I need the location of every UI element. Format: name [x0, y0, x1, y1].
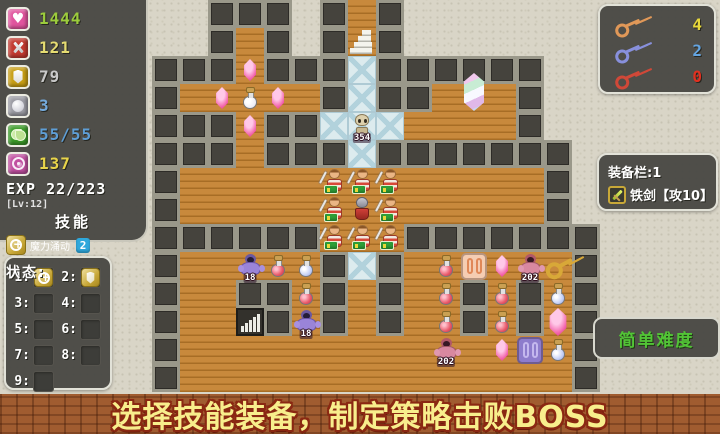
	[377, 225, 403, 251]
plus-circle-icon	[10, 239, 22, 251]
badge	[380, 185, 394, 194]
wall-tile	[292, 112, 320, 140]
difficulty-button[interactable]: 简单难度	[593, 317, 720, 359]
silver-value: 3	[39, 96, 50, 115]
badge	[352, 241, 366, 250]
floor-tile[interactable]	[236, 196, 264, 224]
gem-icon	[243, 115, 258, 137]
floor-tile[interactable]	[460, 196, 488, 224]
wall-tile	[572, 280, 600, 308]
floor-tile[interactable]	[208, 252, 236, 280]
wall-tile	[488, 140, 516, 168]
warrior-sprite[interactable]	[320, 224, 348, 252]
floor-tile[interactable]	[236, 364, 264, 392]
stairs-up-tile[interactable]	[348, 28, 376, 56]
wall-tile	[152, 252, 180, 280]
floor-tile[interactable]	[348, 364, 376, 392]
monster-hp-label: 202	[437, 357, 455, 367]
stats-panel: ♥144412179355/55137 EXP 22/223 [Lv:12] 技…	[0, 0, 148, 242]
big-gem-icon	[548, 308, 569, 336]
wall-tile	[320, 252, 348, 280]
floor-tile[interactable]	[236, 336, 264, 364]
skeleton-sprite[interactable]: 354	[348, 112, 376, 140]
wall-tile	[544, 168, 572, 196]
wall-tile	[264, 0, 292, 28]
floor-tile[interactable]	[292, 168, 320, 196]
potion-red-sprite[interactable]	[488, 280, 516, 308]
floor-tile[interactable]	[432, 364, 460, 392]
wall-tile	[180, 112, 208, 140]
hp-value: 1444	[39, 9, 82, 28]
floor-tile[interactable]	[460, 364, 488, 392]
sword	[347, 227, 355, 239]
	[321, 197, 347, 223]
wall-tile	[376, 0, 404, 28]
heart-icon: ♥	[6, 7, 30, 31]
floor-tile[interactable]	[180, 252, 208, 280]
floor-tile[interactable]	[180, 84, 208, 112]
wall-tile	[236, 0, 264, 28]
red-key-count: 0	[692, 67, 702, 86]
head	[329, 197, 340, 207]
slot-6-box[interactable]	[80, 319, 101, 340]
wall-tile	[264, 28, 292, 56]
floor-tile[interactable]	[432, 84, 460, 112]
money-icon-glyph	[11, 129, 26, 141]
gem-icon	[495, 339, 510, 361]
potion-white-sprite[interactable]	[236, 84, 264, 112]
head	[385, 197, 396, 207]
slot-9-label: 9:	[14, 374, 30, 389]
spiral-icon-glyph	[12, 157, 25, 170]
floor-tile[interactable]	[208, 168, 236, 196]
mage-hp-label: 18	[244, 273, 257, 283]
ice-floor-tile[interactable]	[348, 252, 376, 280]
money-icon	[6, 123, 30, 147]
defense-value: 79	[39, 67, 60, 86]
floor-tile[interactable]	[208, 280, 236, 308]
floor-tile[interactable]	[180, 168, 208, 196]
wall-tile	[516, 308, 544, 336]
wall-tile	[152, 196, 180, 224]
head	[357, 225, 368, 235]
keys-panel: 420	[598, 4, 716, 94]
ice-floor-tile[interactable]	[376, 112, 404, 140]
floor-tile[interactable]	[208, 336, 236, 364]
floor-tile[interactable]	[208, 364, 236, 392]
wall-tile	[152, 280, 180, 308]
sword	[319, 227, 327, 239]
gem-sprite[interactable]	[488, 252, 516, 280]
wall-tile	[208, 56, 236, 84]
sword	[319, 199, 327, 211]
sword	[375, 199, 383, 211]
wall-tile	[264, 224, 292, 252]
wall-tile	[516, 112, 544, 140]
floor-tile[interactable]	[516, 168, 544, 196]
yellow-key-icon	[610, 10, 645, 39]
wall-tile	[376, 56, 404, 84]
head	[356, 197, 368, 208]
slot-9-box[interactable]	[33, 371, 54, 392]
wall-tile	[460, 280, 488, 308]
floor-tile[interactable]	[264, 364, 292, 392]
red-potion-icon	[495, 292, 509, 305]
wall-tile	[544, 140, 572, 168]
floor-tile[interactable]	[180, 336, 208, 364]
floor-tile[interactable]	[404, 364, 432, 392]
floor-tile[interactable]	[432, 168, 460, 196]
mage-hp-label: 18	[300, 329, 313, 339]
badge	[380, 213, 394, 222]
floor-tile[interactable]	[544, 364, 572, 392]
potion-blue-sprite[interactable]	[544, 280, 572, 308]
ice-floor-tile[interactable]	[320, 112, 348, 140]
gem-sprite[interactable]	[264, 84, 292, 112]
potion-red-sprite[interactable]	[432, 280, 460, 308]
wall-tile	[264, 112, 292, 140]
wall-tile	[152, 112, 180, 140]
floor-tile[interactable]	[292, 196, 320, 224]
floor-tile[interactable]	[348, 280, 376, 308]
exp-value: 22/223	[46, 180, 106, 198]
door-purple-sprite[interactable]	[516, 336, 544, 364]
floor-tile[interactable]	[376, 336, 404, 364]
floor-tile[interactable]	[348, 0, 376, 28]
gem-sprite[interactable]	[488, 336, 516, 364]
: 202	[433, 337, 459, 363]
skill-plus-icon[interactable]	[6, 235, 26, 255]
slot-4-label: 4:	[61, 296, 77, 311]
wall-tile	[376, 28, 404, 56]
sword-icon-glyph	[10, 40, 26, 56]
equipment-title: 装备栏:1	[608, 162, 707, 181]
gem-sprite[interactable]	[236, 112, 264, 140]
slot-6-label: 6:	[61, 322, 77, 337]
badge	[352, 185, 366, 194]
floor-tile[interactable]	[180, 308, 208, 336]
floor-tile[interactable]	[236, 28, 264, 56]
wall-tile	[376, 140, 404, 168]
: 202	[517, 253, 543, 279]
sword-icon	[6, 36, 30, 60]
floor-tile[interactable]	[432, 112, 460, 140]
floor-tile[interactable]	[292, 84, 320, 112]
key-item-sprite[interactable]	[544, 252, 572, 280]
blue-potion-icon	[551, 292, 565, 305]
	[349, 225, 375, 251]
game-screen: 3541818202202 ♥144412179355/55137 EXP 22…	[0, 0, 720, 434]
	[321, 225, 347, 251]
floor-tile[interactable]	[264, 336, 292, 364]
skill-name: 魔力涌动	[30, 238, 70, 253]
floor-tile[interactable]	[460, 336, 488, 364]
wall-tile	[572, 364, 600, 392]
floor-tile[interactable]	[180, 196, 208, 224]
wall-tile	[208, 224, 236, 252]
floor-tile[interactable]	[404, 280, 432, 308]
yellow-key-row: 4	[612, 11, 702, 37]
crystal-sprite[interactable]	[460, 84, 488, 112]
floor-tile[interactable]	[348, 308, 376, 336]
slot-5[interactable]: 5:	[14, 317, 55, 342]
	[377, 169, 403, 195]
floor-tile[interactable]	[488, 196, 516, 224]
wall-tile	[264, 308, 292, 336]
wall-tile	[488, 56, 516, 84]
big-gem-sprite[interactable]	[544, 308, 572, 336]
red-potion-icon	[439, 320, 453, 333]
wall-tile	[152, 336, 180, 364]
badge	[324, 185, 338, 194]
potion-blue-sprite[interactable]	[292, 252, 320, 280]
red-key-row: 0	[612, 63, 702, 89]
skill-count-badge: 2	[76, 238, 90, 253]
slot-3-box[interactable]	[33, 293, 54, 314]
wall-tile	[180, 140, 208, 168]
wall-tile	[236, 224, 264, 252]
banner-text: 选择技能装备，制定策略击败BOSS	[111, 394, 608, 434]
floor-tile[interactable]	[516, 364, 544, 392]
wall-tile	[208, 0, 236, 28]
equipment-item-name: 铁剑【攻10】	[630, 185, 713, 204]
purple-door	[517, 337, 543, 364]
exp-label: EXP	[6, 180, 36, 198]
wall-tile	[516, 140, 544, 168]
gold-key-icon	[542, 252, 574, 279]
: 18	[293, 309, 319, 335]
ice-floor-tile[interactable]	[348, 84, 376, 112]
warrior-sprite[interactable]	[320, 168, 348, 196]
door-orange-sprite[interactable]	[460, 252, 488, 280]
floor-tile[interactable]	[404, 112, 432, 140]
floor-tile[interactable]	[292, 364, 320, 392]
heart-icon-glyph: ♥	[12, 12, 25, 26]
floor-tile[interactable]	[488, 84, 516, 112]
wall-tile	[292, 224, 320, 252]
skill-mana-surge[interactable]: 魔力涌动 2	[6, 235, 140, 255]
floor-tile[interactable]	[180, 280, 208, 308]
wall-tile	[404, 140, 432, 168]
wall-tile	[376, 280, 404, 308]
red-potion-icon	[299, 292, 313, 305]
floor-tile[interactable]	[320, 336, 348, 364]
potion-red-sprite[interactable]	[432, 308, 460, 336]
status-label: 状态:	[6, 262, 140, 282]
gem-icon	[495, 255, 510, 277]
shield-icon	[6, 65, 30, 89]
wall-tile	[264, 56, 292, 84]
sword	[375, 227, 383, 239]
warrior-sprite[interactable]	[348, 168, 376, 196]
red-key-icon	[610, 62, 645, 91]
slot-8[interactable]: 8:	[61, 343, 102, 368]
floor-tile[interactable]	[236, 140, 264, 168]
warrior-sprite[interactable]	[376, 168, 404, 196]
hero-sprite	[348, 196, 376, 224]
coin-icon-glyph	[12, 100, 24, 112]
wall-tile	[572, 224, 600, 252]
sword	[347, 171, 355, 183]
wall-tile	[320, 28, 348, 56]
slot-9[interactable]: 9:	[14, 369, 55, 394]
slot-8-label: 8:	[61, 348, 77, 363]
wall-tile	[320, 140, 348, 168]
head	[385, 225, 396, 235]
gem-icon	[271, 87, 286, 109]
floor-tile[interactable]	[460, 112, 488, 140]
slot-6[interactable]: 6:	[61, 317, 102, 342]
monster-hp-label: 202	[521, 273, 539, 283]
defense-row: 79	[6, 62, 140, 91]
wall-tile	[432, 56, 460, 84]
iron-sword-icon	[608, 186, 626, 204]
badge	[324, 213, 338, 222]
wall-tile	[292, 140, 320, 168]
wall-tile	[236, 280, 264, 308]
	[349, 169, 375, 195]
stairs-down-tile[interactable]	[236, 308, 264, 336]
red-potion-icon	[439, 292, 453, 305]
yellow-key-count: 4	[692, 15, 702, 34]
wall-tile	[292, 56, 320, 84]
wall-tile	[152, 224, 180, 252]
wall-tile	[432, 224, 460, 252]
potion-red-sprite[interactable]	[264, 252, 292, 280]
wall-tile	[516, 224, 544, 252]
wall-tile	[516, 56, 544, 84]
wall-tile	[460, 308, 488, 336]
wall-tile	[180, 224, 208, 252]
floor-tile[interactable]	[516, 196, 544, 224]
wall-tile	[376, 84, 404, 112]
mage-sprite[interactable]: 18	[236, 252, 264, 280]
head	[355, 114, 369, 126]
warrior-sprite[interactable]	[376, 196, 404, 224]
head	[357, 169, 368, 179]
potion-red-sprite[interactable]	[488, 308, 516, 336]
slot-4[interactable]: 4:	[61, 291, 102, 316]
potion-blue-sprite[interactable]	[544, 336, 572, 364]
skills-title: 技能	[6, 211, 140, 232]
warrior-sprite[interactable]	[348, 224, 376, 252]
shield-icon-glyph	[12, 70, 24, 84]
wall-tile	[544, 224, 572, 252]
floor-tile[interactable]	[292, 336, 320, 364]
slot-5-box[interactable]	[33, 319, 54, 340]
wall-tile	[320, 56, 348, 84]
wall-tile	[404, 84, 432, 112]
game-map[interactable]: 3541818202202	[152, 0, 600, 392]
wall-tile	[320, 308, 348, 336]
ice-floor-tile[interactable]	[348, 140, 376, 168]
wall-tile	[180, 56, 208, 84]
wall-tile	[152, 56, 180, 84]
floor-tile[interactable]	[488, 168, 516, 196]
slot-4-box[interactable]	[80, 293, 101, 314]
magic-value: 137	[39, 154, 71, 173]
gem-sprite[interactable]	[208, 84, 236, 112]
floor-tile[interactable]	[404, 252, 432, 280]
: 354	[349, 113, 375, 139]
floor-tile[interactable]	[460, 168, 488, 196]
gem-sprite[interactable]	[236, 56, 264, 84]
floor-tile[interactable]	[404, 308, 432, 336]
wall-tile	[152, 364, 180, 392]
potion-red-sprite[interactable]	[432, 252, 460, 280]
slot-7-box[interactable]	[33, 345, 54, 366]
blue-key-count: 2	[692, 41, 702, 60]
slot-8-box[interactable]	[80, 345, 101, 366]
blue-key-row: 2	[612, 37, 702, 63]
equipment-item[interactable]: 铁剑【攻10】	[608, 185, 707, 204]
floor-tile[interactable]	[208, 196, 236, 224]
red-potion-icon	[271, 264, 285, 277]
floor-tile[interactable]	[404, 168, 432, 196]
magic-row: 137	[6, 149, 140, 178]
spiral-icon	[6, 152, 30, 176]
floor-tile[interactable]	[376, 364, 404, 392]
warrior-sprite[interactable]	[320, 196, 348, 224]
stat-rows: ♥144412179355/55137	[6, 4, 140, 178]
floor-tile[interactable]	[488, 112, 516, 140]
sword	[375, 171, 383, 183]
floor-tile[interactable]	[180, 364, 208, 392]
head	[329, 225, 340, 235]
money-row: 55/55	[6, 120, 140, 149]
orange-door	[461, 253, 487, 280]
slot-3-label: 3:	[14, 296, 30, 311]
attack-row: 121	[6, 33, 140, 62]
ice-floor-tile[interactable]	[348, 56, 376, 84]
gem-icon	[215, 87, 230, 109]
wall-tile	[320, 280, 348, 308]
: 18	[237, 253, 263, 279]
monster-sprite[interactable]: 202	[432, 336, 460, 364]
wall-tile	[432, 140, 460, 168]
slot-7-label: 7:	[14, 348, 30, 363]
level-label: [Lv:12]	[6, 199, 140, 210]
wall-tile	[516, 84, 544, 112]
warrior-sprite[interactable]	[376, 224, 404, 252]
floor-tile[interactable]	[264, 168, 292, 196]
floor-tile[interactable]	[432, 196, 460, 224]
wall-tile	[152, 84, 180, 112]
mage-sprite[interactable]: 18	[292, 308, 320, 336]
floor-tile[interactable]	[320, 364, 348, 392]
slot-7[interactable]: 7:	[14, 343, 55, 368]
hp-row: ♥1444	[6, 4, 140, 33]
floor-tile[interactable]	[404, 336, 432, 364]
monster-sprite[interactable]: 202	[516, 252, 544, 280]
head	[385, 169, 396, 179]
money-value: 55/55	[39, 125, 92, 144]
wall-tile	[460, 224, 488, 252]
floor-tile[interactable]	[236, 168, 264, 196]
potion-red-sprite[interactable]	[292, 280, 320, 308]
floor-tile[interactable]	[264, 196, 292, 224]
blue-potion-icon	[551, 348, 565, 361]
red-potion-icon	[439, 264, 453, 277]
floor-tile[interactable]	[488, 364, 516, 392]
wall-tile	[488, 224, 516, 252]
slot-3[interactable]: 3:	[14, 291, 55, 316]
wall-tile	[404, 56, 432, 84]
wall-tile	[320, 84, 348, 112]
floor-tile[interactable]	[404, 196, 432, 224]
floor-tile[interactable]	[208, 308, 236, 336]
floor-tile[interactable]	[348, 336, 376, 364]
